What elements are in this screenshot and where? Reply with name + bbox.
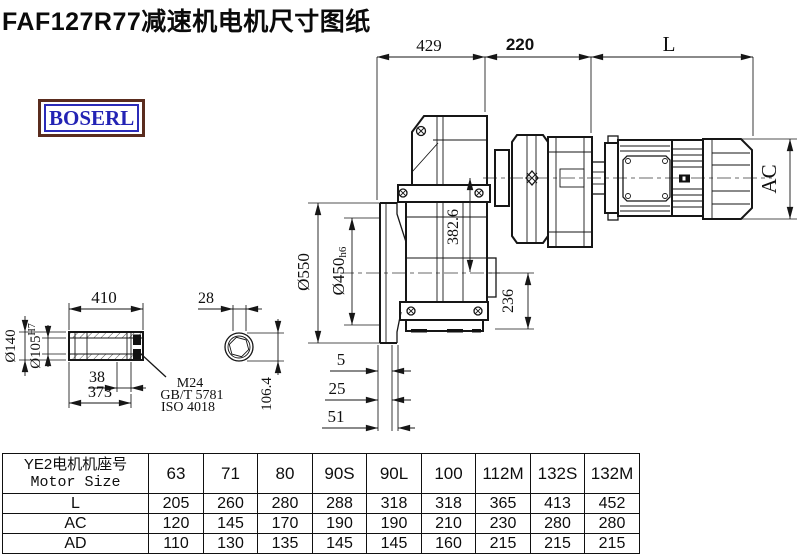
col-header: 71: [204, 454, 258, 494]
bolt-icon: [399, 189, 407, 197]
dim-105H7-label: Ø105H7: [27, 323, 44, 369]
cell: 260: [204, 494, 258, 514]
cell: 110: [149, 534, 204, 554]
dim-L-label: L: [663, 32, 676, 56]
col-header: 112M: [476, 454, 531, 494]
dim-410-label: 410: [91, 288, 117, 307]
dim-550-label: Ø550: [294, 253, 313, 291]
row-label: AC: [3, 514, 149, 534]
hex-bolt-icon: [229, 337, 248, 356]
dim-373-label: 373: [88, 384, 112, 401]
cell: 215: [585, 534, 640, 554]
bolt-icon: [474, 307, 482, 315]
col-header: 90S: [313, 454, 367, 494]
dim-382-label: 382.6: [445, 209, 462, 245]
dim-236-label: 236: [500, 289, 517, 313]
dim-5-label: 5: [337, 350, 346, 369]
motor-size-table: YE2电机机座号 Motor Size 63 71 80 90S 90L 100…: [2, 453, 640, 554]
dim-51-label: 51: [328, 407, 345, 426]
cell: 215: [531, 534, 585, 554]
cell: 230: [476, 514, 531, 534]
header-cn: YE2电机机座号: [3, 456, 148, 474]
row-label: L: [3, 494, 149, 514]
cell: 288: [313, 494, 367, 514]
cell: 205: [149, 494, 204, 514]
cell: 452: [585, 494, 640, 514]
fan-cowl: [703, 139, 752, 219]
col-header: 80: [258, 454, 313, 494]
bolt-icon: [407, 307, 415, 315]
cell: 145: [204, 514, 258, 534]
table-row-L: L 205 260 280 288 318 318 365 413 452: [3, 494, 640, 514]
note-std2-label: ISO 4018: [161, 400, 215, 415]
bolt-icon: [475, 189, 483, 197]
row-label: AD: [3, 534, 149, 554]
col-header: 132S: [531, 454, 585, 494]
dim-28-label: 28: [198, 290, 214, 307]
cell: 145: [313, 534, 367, 554]
col-header: 63: [149, 454, 204, 494]
cell: 170: [258, 514, 313, 534]
cell: 135: [258, 534, 313, 554]
dim-220-label: 220: [506, 35, 534, 54]
cell: 318: [367, 494, 422, 514]
dim-25-label: 25: [329, 379, 346, 398]
dim-429-label: 429: [416, 36, 442, 55]
motor-size-header-cell: YE2电机机座号 Motor Size: [3, 454, 149, 494]
cell: 190: [313, 514, 367, 534]
col-header: 132M: [585, 454, 640, 494]
cell: 280: [585, 514, 640, 534]
dim-AC-label: AC: [757, 164, 781, 193]
cell: 130: [204, 534, 258, 554]
cell: 365: [476, 494, 531, 514]
dim-450h6-label: Ø450h6: [329, 246, 349, 295]
col-header: 90L: [367, 454, 422, 494]
cell: 190: [367, 514, 422, 534]
dim-140-label: Ø140: [3, 329, 19, 362]
ac-dimension: AC: [714, 139, 797, 219]
cell: 210: [422, 514, 476, 534]
col-header: 100: [422, 454, 476, 494]
motor-adapter: [495, 135, 605, 247]
table-row-AD: AD 110 130 135 145 145 160 215 215 215: [3, 534, 640, 554]
bolt-icon: [417, 127, 426, 136]
header-en: Motor Size: [3, 474, 148, 491]
cell: 318: [422, 494, 476, 514]
cell: 413: [531, 494, 585, 514]
drawing-page: FAF127R77减速机电机尺寸图纸 BOSERL 429 220 L: [0, 0, 800, 557]
cell: 280: [531, 514, 585, 534]
cell: 145: [367, 534, 422, 554]
table-row-AC: AC 120 145 170 190 190 210 230 280 280: [3, 514, 640, 534]
cell: 280: [258, 494, 313, 514]
cell: 120: [149, 514, 204, 534]
cell: 215: [476, 534, 531, 554]
table-header-row: YE2电机机座号 Motor Size 63 71 80 90S 90L 100…: [3, 454, 640, 494]
dim-106-label: 106.4: [259, 377, 275, 411]
hollow-shaft-detail: 410 Ø140 Ø105H7: [3, 288, 224, 415]
offset-dimensions: 5 25 51: [322, 345, 415, 431]
cell: 160: [422, 534, 476, 554]
